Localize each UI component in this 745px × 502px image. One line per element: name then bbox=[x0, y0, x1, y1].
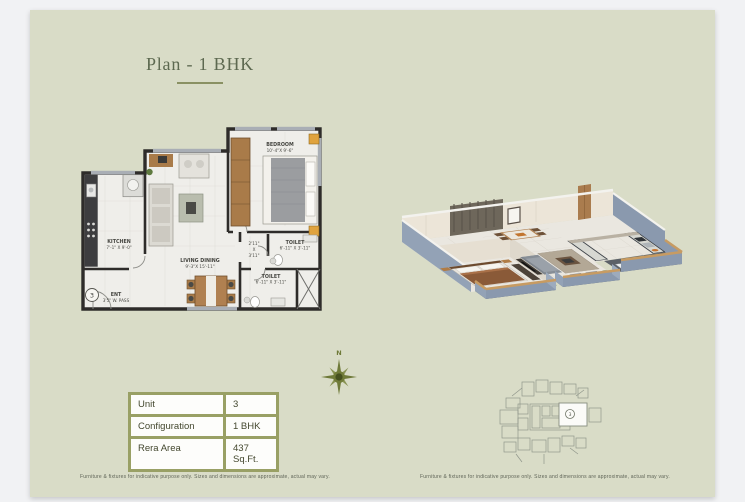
wall-picture-frame bbox=[508, 207, 520, 224]
table-row: Unit 3 bbox=[131, 395, 276, 414]
rera-area-value: 437 Sq.Ft. bbox=[226, 439, 276, 469]
passage-dims-2: X bbox=[253, 247, 256, 252]
disclaimer-right: Furniture & fixtures for indicative purp… bbox=[400, 474, 690, 480]
toilet-bottom-dims: 6'-11" X 3'-11" bbox=[256, 280, 287, 285]
passage-dims-3: 3'11" bbox=[248, 253, 259, 258]
details-table: Unit 3 Configuration 1 BHK Rera Area 437… bbox=[128, 392, 279, 472]
unit-label: Unit bbox=[131, 395, 223, 414]
unit-marker-number: 3 bbox=[90, 291, 94, 299]
floor-plan-2d: 3 KITCHEN 7'-1" X 9'-0" LIVING DINING 9'… bbox=[75, 106, 340, 318]
configuration-label: Configuration bbox=[131, 417, 223, 436]
keyplan-highlight-unit bbox=[559, 403, 587, 426]
compass: N bbox=[318, 346, 360, 398]
brochure-page: Plan - 1 BHK bbox=[30, 10, 715, 497]
table-row: Rera Area 437 Sq.Ft. bbox=[131, 439, 276, 469]
disclaimer-left: Furniture & fixtures for indicative purp… bbox=[45, 474, 365, 480]
kitchen-dims: 7'-1" X 9'-0" bbox=[106, 245, 131, 250]
table-row: Configuration 1 BHK bbox=[131, 417, 276, 436]
key-plan: 3 bbox=[492, 374, 610, 472]
keyplan-unit-number: 3 bbox=[569, 412, 572, 418]
title-underline bbox=[177, 82, 223, 84]
living-dims: 9'-3"X 15'-11" bbox=[185, 264, 214, 269]
page-title-block: Plan - 1 BHK bbox=[30, 54, 370, 84]
entrance-dims: 3'5" W. PASS bbox=[103, 298, 130, 303]
passage-dims-1: 2'11" bbox=[248, 241, 259, 246]
floor-plan-3d bbox=[396, 102, 696, 324]
toilet-top-dims: 6'-11" X 3'-11" bbox=[280, 246, 311, 251]
compass-north-label: N bbox=[336, 349, 341, 357]
rera-area-label: Rera Area bbox=[131, 439, 223, 469]
bedroom-dims: 10'-4"X 9'-6" bbox=[267, 148, 294, 153]
configuration-value: 1 BHK bbox=[226, 417, 276, 436]
unit-value: 3 bbox=[226, 395, 276, 414]
page-title: Plan - 1 BHK bbox=[30, 54, 370, 75]
compass-center bbox=[335, 373, 342, 380]
